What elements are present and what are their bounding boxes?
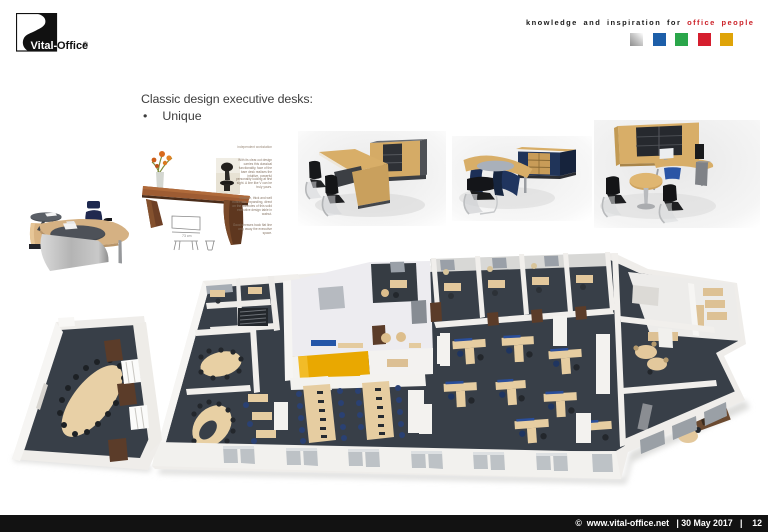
svg-text:73 cm: 73 cm <box>182 234 192 238</box>
svg-text:®: ® <box>83 40 88 48</box>
svg-text:Vital-: Vital- <box>31 40 58 52</box>
